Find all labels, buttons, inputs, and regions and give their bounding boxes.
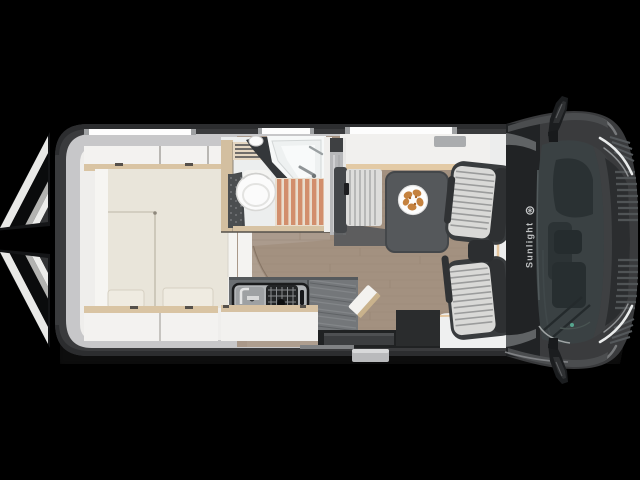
svg-text:Sunlight: Sunlight: [525, 222, 535, 268]
